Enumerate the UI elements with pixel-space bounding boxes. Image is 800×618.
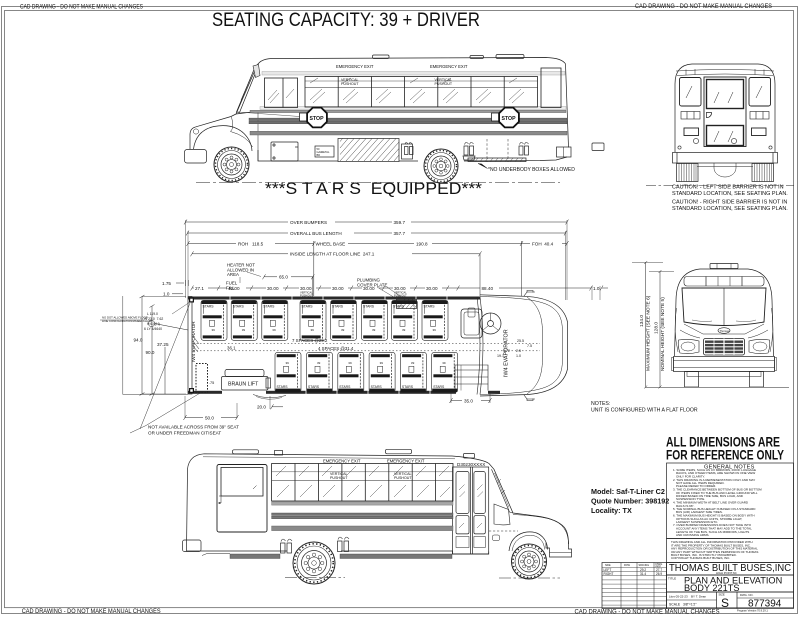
- svg-text:SPACING: SPACING: [639, 564, 650, 567]
- svg-text:7 SPACES @29.2: 7 SPACES @29.2: [292, 338, 328, 343]
- svg-text:90.0: 90.0: [146, 350, 155, 355]
- svg-text:Quote Number: 398192: Quote Number: 398192: [591, 497, 669, 506]
- svg-text:20.0: 20.0: [257, 405, 266, 410]
- svg-text:*NO UNDERBODY BOXES ALLOWED: *NO UNDERBODY BOXES ALLOWED: [488, 167, 575, 173]
- svg-text:357.7: 357.7: [394, 231, 406, 236]
- svg-text:Model: Saf-T-Liner C2: Model: Saf-T-Liner C2: [591, 487, 665, 496]
- svg-text:CAD DRAWING - DO NOT MAKE MANU: CAD DRAWING - DO NOT MAKE MANUAL CHANGES: [20, 5, 143, 11]
- svg-text:EMERGENCY EXIT: EMERGENCY EXIT: [387, 459, 425, 464]
- svg-text:94.0: 94.0: [134, 338, 143, 343]
- svg-text:31.4: 31.4: [640, 572, 646, 576]
- svg-text:METAL: METAL: [321, 150, 330, 154]
- svg-text:CAD DRAWING - DO NOT MAKE MANU: CAD DRAWING - DO NOT MAKE MANUAL CHANGES: [575, 610, 720, 616]
- svg-text:COPYRIGHT THOMAS BUILT BUSES,: COPYRIGHT THOMAS BUILT BUSES, INC.: [671, 556, 730, 560]
- svg-text:OVERALL BUS LENGTH: OVERALL BUS LENGTH: [290, 231, 342, 236]
- svg-text:.75: .75: [209, 381, 214, 385]
- svg-text:30.00: 30.00: [394, 286, 406, 291]
- svg-text:37.25: 37.25: [157, 342, 169, 347]
- svg-text:190.8: 190.8: [416, 241, 428, 246]
- svg-text:D30230XXXX: D30230XXXX: [457, 462, 485, 467]
- svg-text:26.9: 26.9: [656, 572, 662, 576]
- svg-text:PUSHOUT: PUSHOUT: [341, 82, 359, 86]
- svg-text:BD: BD: [317, 153, 321, 157]
- svg-text:NOTES:: NOTES:: [591, 401, 610, 407]
- svg-text:30.00: 30.00: [363, 286, 375, 291]
- svg-text:STANDARD LOCATION, SEE SEATING: STANDARD LOCATION, SEE SEATING PLAN.: [672, 191, 788, 197]
- svg-text:7.5: 7.5: [527, 344, 532, 348]
- svg-text:134.0: 134.0: [639, 315, 645, 327]
- svg-text:25.5: 25.5: [517, 339, 524, 343]
- svg-text:UNIT IS CONFIGURED WITH A FLAT: UNIT IS CONFIGURED WITH A FLAT FLOOR: [591, 408, 698, 414]
- svg-text:PUSHOUT: PUSHOUT: [435, 82, 453, 86]
- svg-text:S: S: [721, 596, 729, 610]
- svg-text:1.0: 1.0: [163, 292, 170, 297]
- svg-text:EMERGENCY EXIT: EMERGENCY EXIT: [430, 64, 468, 69]
- svg-text:65.0: 65.0: [279, 275, 288, 280]
- svg-text:NOMINAL HEIGHT (SEE NOTE 5): NOMINAL HEIGHT (SEE NOTE 5): [660, 297, 666, 371]
- svg-text:L 119.0: L 119.0: [147, 312, 158, 316]
- svg-text:359.7: 359.7: [394, 220, 406, 225]
- svg-text:4 SPACES @31.4: 4 SPACES @31.4: [318, 346, 354, 351]
- svg-text:30.00: 30.00: [426, 286, 438, 291]
- svg-text:1.75: 1.75: [162, 281, 171, 286]
- svg-text:OVER BUMPERS: OVER BUMPERS: [290, 220, 327, 225]
- svg-text:877394: 877394: [748, 599, 782, 610]
- svg-text:50.0: 50.0: [205, 415, 214, 420]
- svg-text:SEATING CAPACITY: 39 + DRIVER: SEATING CAPACITY: 39 + DRIVER: [212, 9, 480, 31]
- svg-text:ROH 118.5: ROH 118.5: [238, 241, 264, 246]
- svg-text:1.0: 1.0: [593, 286, 600, 291]
- svg-text:AREA: AREA: [227, 272, 239, 277]
- svg-text:STOP: STOP: [502, 116, 517, 122]
- svg-text:30.00: 30.00: [300, 286, 312, 291]
- svg-text:NOT AVAILABLE ACROSS FROM 39": NOT AVAILABLE ACROSS FROM 39" SEAT: [148, 425, 239, 430]
- svg-text:30.00: 30.00: [332, 286, 344, 291]
- svg-text:PUSHOUT: PUSHOUT: [330, 476, 348, 480]
- svg-text:ROW: ROW: [624, 564, 631, 567]
- svg-text:TITLE: TITLE: [668, 577, 676, 581]
- svg-text:LINE CONFIGURATION/WHEELCHAIR: LINE CONFIGURATION/WHEELCHAIR: [102, 319, 152, 323]
- svg-text:46.00: 46.00: [228, 286, 240, 291]
- svg-text:36.1: 36.1: [227, 346, 236, 351]
- svg-text:AND CROSSING ARMS.: AND CROSSING ARMS.: [676, 533, 710, 537]
- svg-text:1.0: 1.0: [516, 354, 521, 358]
- svg-text:BRAUN LIFT: BRAUN LIFT: [228, 382, 259, 388]
- svg-text:Program Version 70.9.29.1: Program Version 70.9.29.1: [737, 609, 768, 613]
- svg-text:RIGHT: RIGHT: [604, 572, 614, 576]
- svg-text:STANDARD LOCATION, SEE SEATING: STANDARD LOCATION, SEE SEATING PLAN.: [672, 206, 788, 212]
- svg-text:88.40: 88.40: [482, 286, 494, 291]
- svg-text:128.0: 128.0: [654, 322, 660, 334]
- svg-text:2.5: 2.5: [516, 349, 521, 353]
- svg-text:35.0: 35.0: [464, 398, 473, 403]
- svg-text:DWG. NO.: DWG. NO.: [740, 593, 754, 597]
- svg-text:IW4 EVAPORATOR: IW4 EVAPORATOR: [504, 329, 510, 377]
- svg-text:30.00: 30.00: [267, 286, 279, 291]
- svg-text:OR UNDER FREEDMAN CITISEAT: OR UNDER FREEDMAN CITISEAT: [148, 431, 221, 436]
- svg-text:CAUTION! - LEFT SIDE BARRIER I: CAUTION! - LEFT SIDE BARRIER IS NOT IN: [672, 185, 784, 191]
- svg-text:MAXIMUM HEIGHT (SEE NOTE 6): MAXIMUM HEIGHT (SEE NOTE 6): [646, 295, 652, 371]
- svg-text:CAUTION! - RIGHT SIDE BARRIER: CAUTION! - RIGHT SIDE BARRIER IS NOT IN: [672, 200, 787, 206]
- svg-text:CAD DRAWING - DO NOT MAKE MANU: CAD DRAWING - DO NOT MAKE MANUAL CHANGES: [22, 609, 161, 615]
- svg-text:WHEEL BASE: WHEEL BASE: [316, 241, 346, 246]
- svg-text:Thomas: Thomas: [720, 329, 730, 333]
- svg-text:EMERGENCY EXIT: EMERGENCY EXIT: [336, 64, 374, 69]
- svg-text:Locality: TX: Locality: TX: [591, 506, 632, 515]
- svg-text:FOR REFERENCE ONLY: FOR REFERENCE ONLY: [666, 448, 784, 463]
- svg-text:SCALE 3/8"=1'2": SCALE 3/8"=1'2": [669, 603, 697, 607]
- svg-text:EMERGENCY EXIT: EMERGENCY EXIT: [323, 459, 361, 464]
- svg-text:Lttrs 05-22-23 BY T. Dean: Lttrs 05-22-23 BY T. Dean: [669, 595, 706, 599]
- svg-text:CAD DRAWING - DO NOT MAKE MANU: CAD DRAWING - DO NOT MAKE MANUAL CHANGES: [635, 4, 772, 10]
- svg-text:BODY 221TS: BODY 221TS: [684, 583, 740, 593]
- svg-text:FOH 40.4: FOH 40.4: [532, 241, 554, 246]
- svg-text:27.1: 27.1: [195, 286, 204, 291]
- svg-text:6 LY 4/4640: 6 LY 4/4640: [144, 327, 162, 331]
- svg-text:4.72: 4.72: [503, 349, 510, 353]
- svg-text:PUSHOUT: PUSHOUT: [394, 476, 412, 480]
- svg-text:STOP: STOP: [310, 116, 325, 122]
- svg-text:19.1: 19.1: [497, 354, 504, 358]
- svg-text:SIDE: SIDE: [605, 564, 611, 567]
- svg-text:INSIDE LENGTH AT FLOOR LINE 2: INSIDE LENGTH AT FLOOR LINE 247.1: [290, 252, 375, 257]
